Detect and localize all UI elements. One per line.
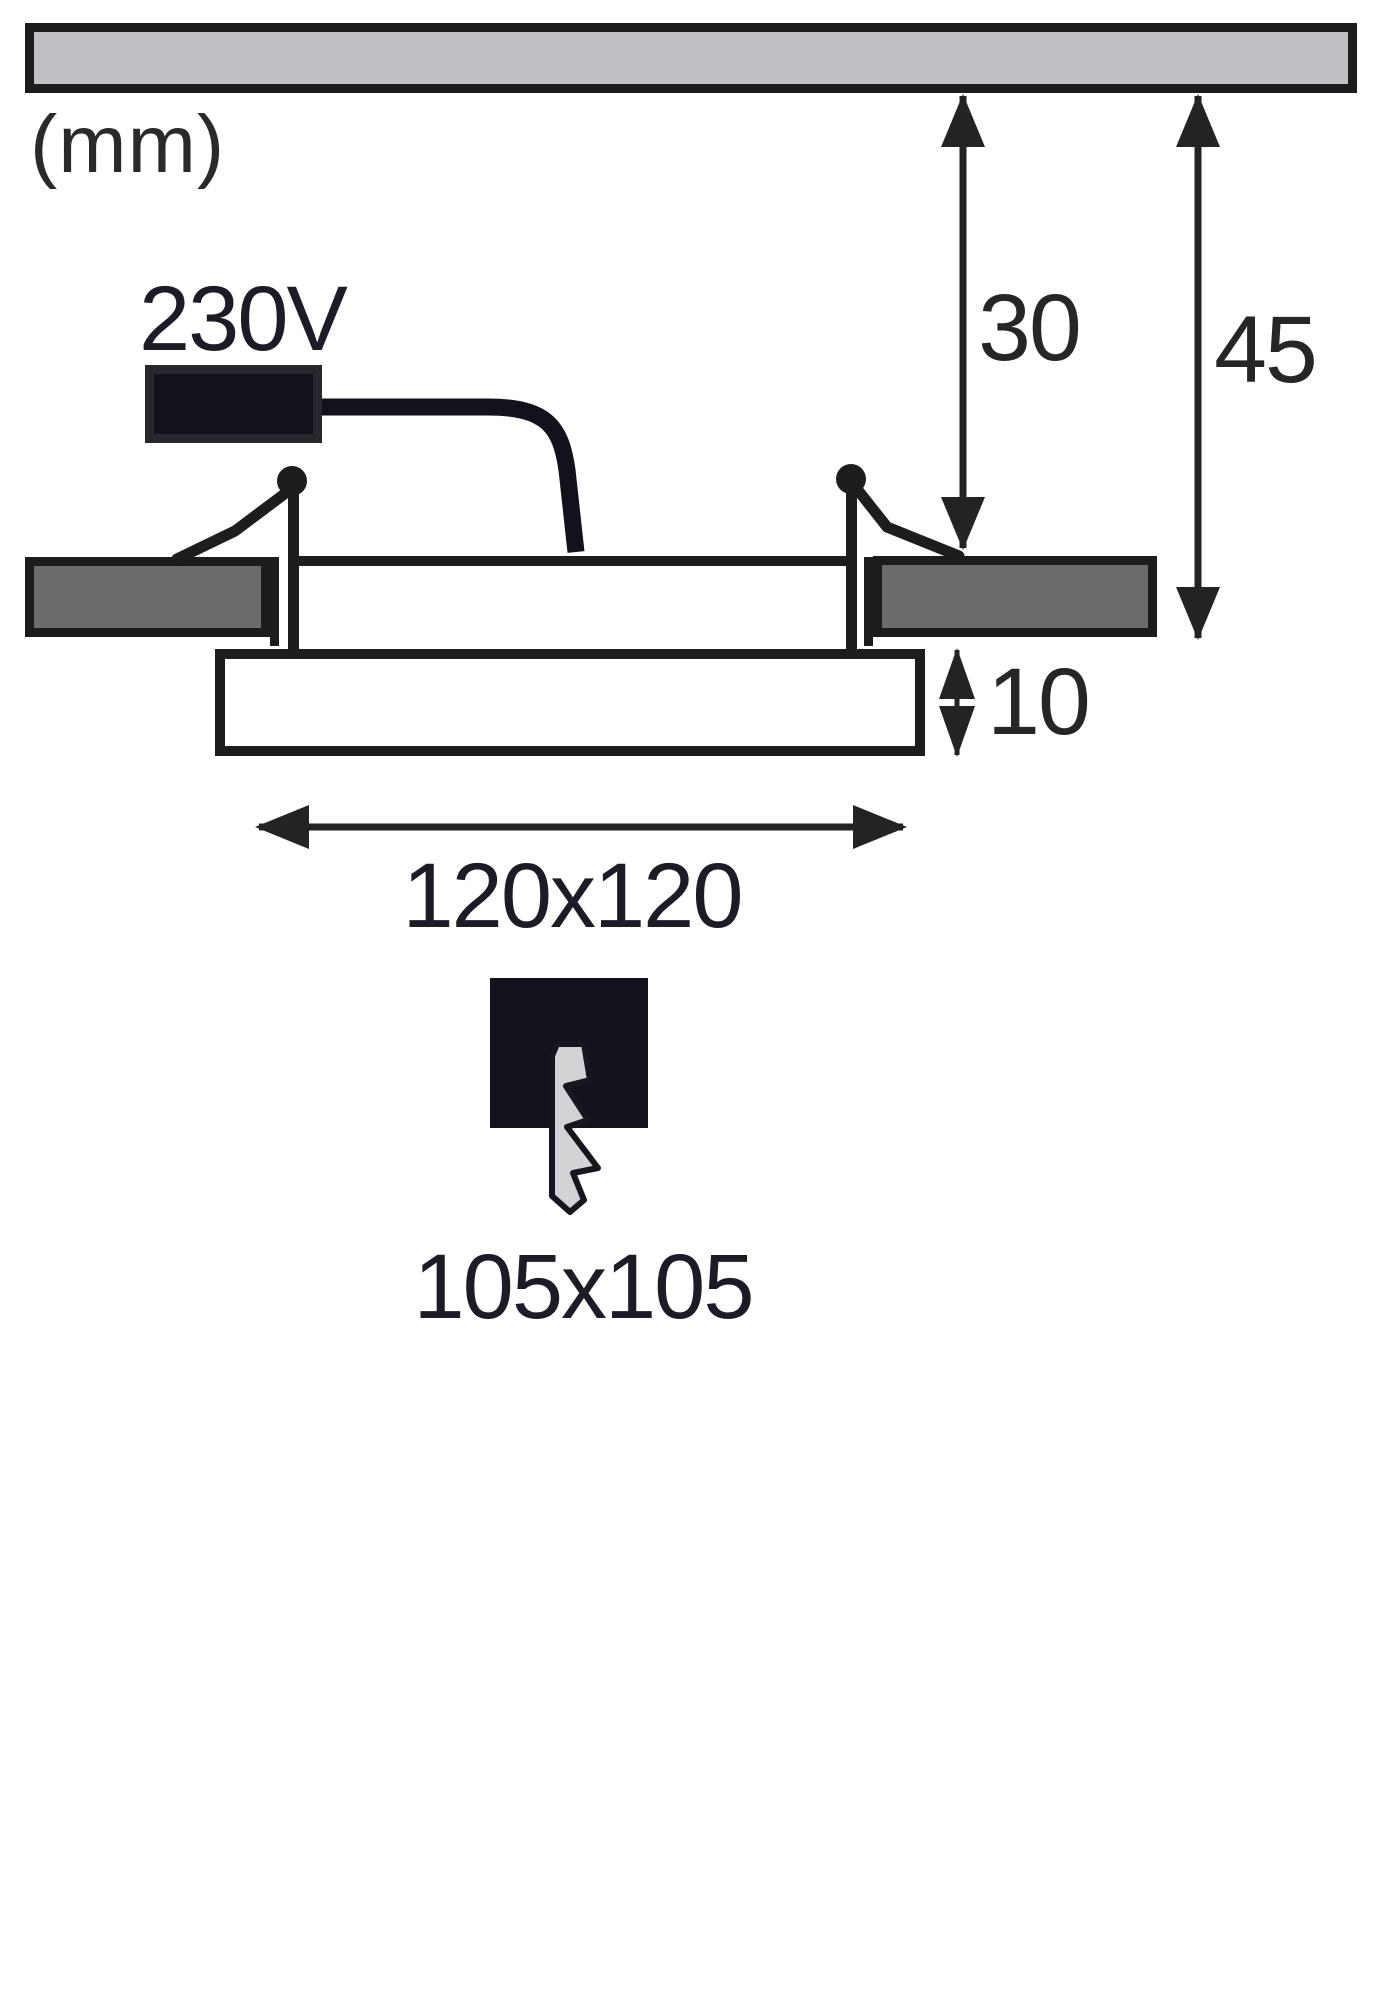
ceiling-slab	[30, 28, 1353, 89]
power-driver-box	[150, 370, 318, 439]
voltage-label: 230V	[139, 273, 346, 365]
unit-label: (mm)	[30, 104, 225, 186]
mains-cable	[322, 407, 576, 552]
dim-120-arrowhead-right	[853, 805, 907, 849]
dim-120-line	[259, 824, 903, 831]
clip-right-post	[846, 478, 857, 653]
dim-30-arrowhead-down	[941, 497, 985, 550]
clip-right-pivot	[836, 464, 866, 494]
ceiling-panel-left	[30, 562, 266, 633]
dim-45-arrowhead-down	[1176, 587, 1220, 640]
clip-left-post	[288, 480, 299, 653]
cutout-size-value: 105x105	[383, 1241, 783, 1333]
dimension-arrow-120	[255, 805, 907, 849]
ceiling-panel-right	[878, 561, 1153, 633]
panel-size-value: 120x120	[372, 850, 772, 942]
clip-left-spring-arm	[177, 492, 287, 559]
housing-top-edge	[294, 556, 854, 566]
ceiling-panel-left-edge	[270, 557, 279, 646]
installation-diagram: (mm) 230V 30 45 10 120x120 105x105	[0, 0, 1380, 2000]
panel-frame	[220, 654, 920, 751]
dim-45-arrowhead-up	[1176, 94, 1220, 147]
dim-45-value: 45	[1185, 303, 1345, 398]
dim-10-value: 10	[958, 655, 1118, 750]
clip-left-pivot	[277, 466, 307, 496]
dim-30-arrowhead-up	[941, 94, 985, 147]
dim-30-value: 30	[949, 281, 1109, 376]
ceiling-panel-right-edge	[864, 557, 873, 646]
dim-120-arrowhead-left	[255, 805, 309, 849]
